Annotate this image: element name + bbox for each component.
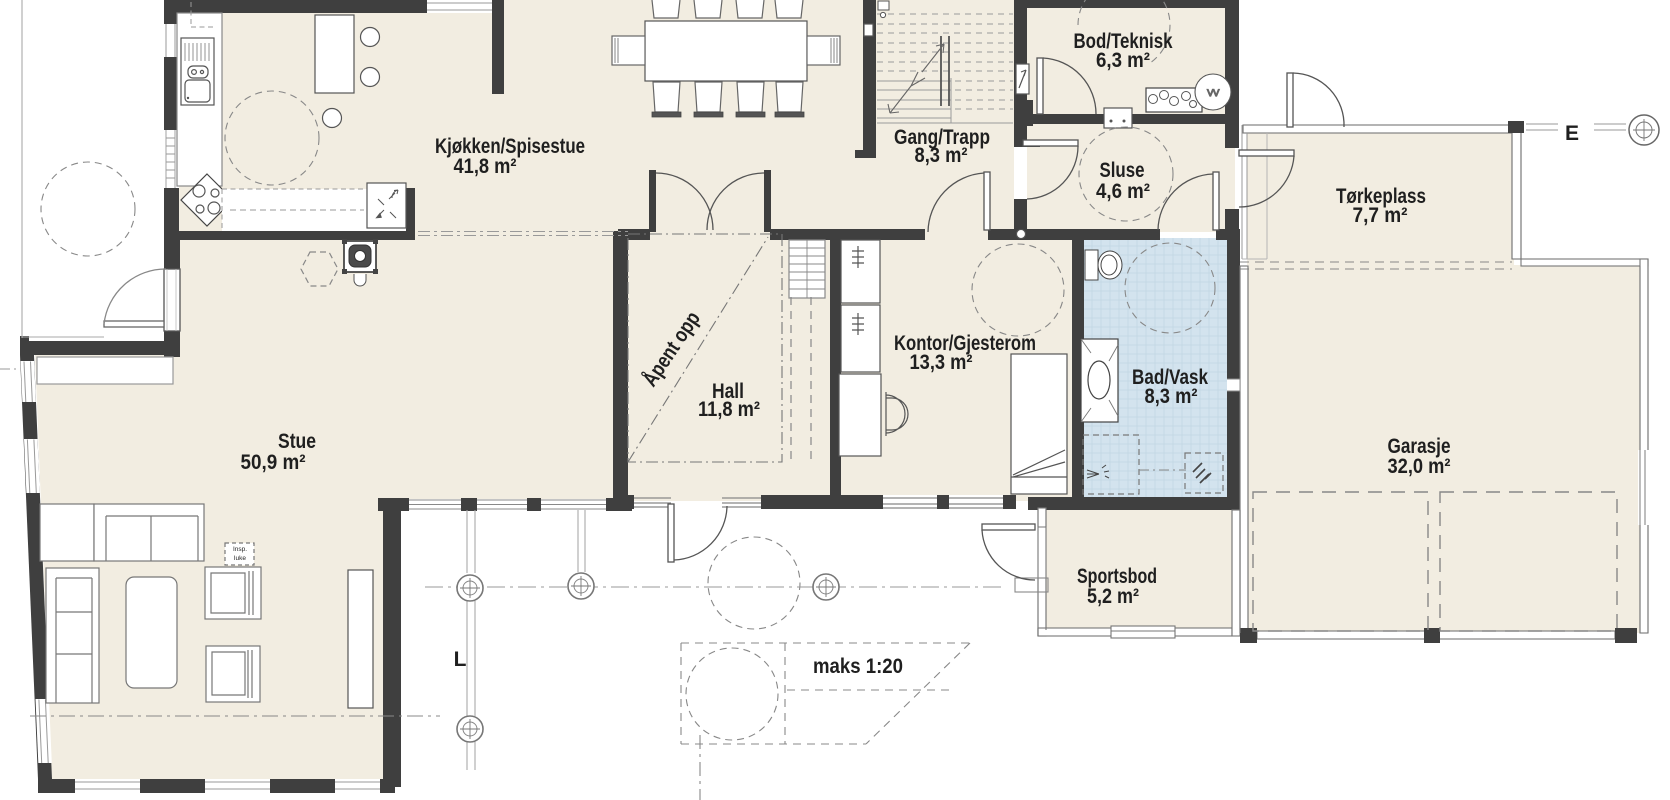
svg-text:4,6 m²: 4,6 m² — [1096, 180, 1150, 203]
svg-text:7,7 m²: 7,7 m² — [1353, 204, 1408, 227]
svg-text:Insp.: Insp. — [233, 546, 247, 553]
svg-text:11,8 m²: 11,8 m² — [698, 398, 760, 421]
svg-text:luke: luke — [234, 555, 246, 562]
svg-text:maks 1:20: maks 1:20 — [813, 655, 903, 678]
svg-text:Stue: Stue — [278, 430, 316, 453]
svg-text:50,9 m²: 50,9 m² — [241, 451, 306, 474]
svg-text:41,8 m²: 41,8 m² — [454, 155, 517, 178]
svg-text:Sluse: Sluse — [1100, 159, 1145, 182]
svg-text:L: L — [454, 648, 467, 671]
svg-text:5,2 m²: 5,2 m² — [1087, 585, 1139, 608]
svg-text:32,0 m²: 32,0 m² — [1388, 455, 1451, 478]
svg-text:13,3 m²: 13,3 m² — [910, 351, 973, 374]
svg-text:8,3 m²: 8,3 m² — [915, 144, 968, 167]
svg-text:E: E — [1565, 122, 1579, 145]
svg-text:VV: VV — [1207, 88, 1220, 99]
svg-text:8,3 m²: 8,3 m² — [1145, 385, 1198, 408]
svg-text:6,3 m²: 6,3 m² — [1096, 49, 1150, 72]
